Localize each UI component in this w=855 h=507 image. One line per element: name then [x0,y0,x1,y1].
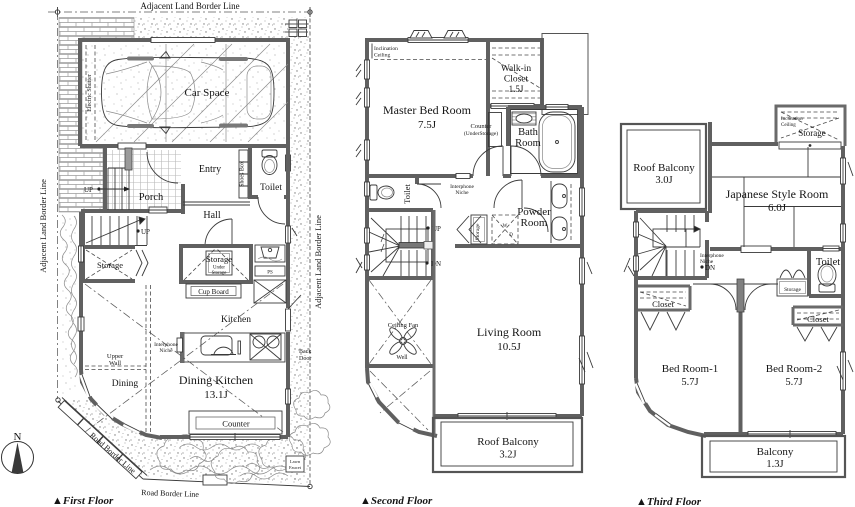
svg-text:Storage: Storage [784,287,801,293]
svg-text:Upper: Upper [107,353,124,360]
svg-text:Dining: Dining [112,379,139,389]
svg-text:Inclination: Inclination [781,117,803,122]
svg-text:Dining Kitchen: Dining Kitchen [179,373,253,387]
svg-text:5.7J: 5.7J [681,377,698,388]
svg-text:Adjacent Land Border Line: Adjacent Land Border Line [38,179,48,273]
svg-text:Adjacent Land Border Line: Adjacent Land Border Line [140,1,239,11]
svg-text:Faucet: Faucet [289,465,302,470]
svg-text:Toilet: Toilet [816,257,840,268]
svg-text:Room: Room [521,217,548,229]
svg-text:Counter: Counter [222,419,250,429]
svg-text:13.1J: 13.1J [204,389,228,401]
svg-text:1.3J: 1.3J [766,459,783,470]
svg-text:Closet: Closet [504,75,529,85]
svg-text:Shoes Box: Shoes Box [240,161,246,187]
svg-text:Hall: Hall [203,210,220,221]
svg-text:DN: DN [705,264,715,272]
svg-text:Niche: Niche [455,190,469,196]
svg-text:Roof Balcony: Roof Balcony [477,436,539,448]
svg-text:Storage: Storage [206,254,232,264]
svg-text:Storage: Storage [212,271,227,276]
svg-text:Lawn: Lawn [290,459,301,464]
svg-text:Cup Board: Cup Board [198,288,229,296]
svg-text:Entry: Entry [199,164,221,175]
svg-text:Counter: Counter [471,123,493,130]
svg-text:▲Second Floor: ▲Second Floor [360,495,433,507]
svg-text:6.0J: 6.0J [768,202,787,214]
svg-text:Niche: Niche [159,348,173,354]
svg-text:Toilet: Toilet [260,183,282,193]
svg-text:▲First Floor: ▲First Floor [52,495,114,507]
svg-text:Car Space: Car Space [185,87,230,99]
svg-text:Closet: Closet [652,299,674,309]
svg-text:Porch: Porch [139,192,164,203]
svg-text:3.2J: 3.2J [499,450,516,461]
svg-text:Door: Door [299,356,311,362]
svg-text:D: D [509,233,513,238]
svg-text:Electric Shutter: Electric Shutter [87,74,93,112]
svg-text:Walk-in: Walk-in [501,64,532,74]
svg-text:Inclination: Inclination [374,46,398,52]
svg-text:5.7J: 5.7J [785,377,802,388]
svg-text:1.5J: 1.5J [509,84,524,94]
svg-text:Master Bed Room: Master Bed Room [383,103,472,117]
svg-text:UP: UP [141,228,150,236]
svg-text:Balcony: Balcony [757,446,794,458]
svg-text:Room: Room [515,138,541,149]
svg-text:3.0J: 3.0J [655,175,672,186]
svg-text:Storage: Storage [97,260,123,270]
svg-text:Under: Under [213,266,225,271]
svg-text:Well: Well [396,355,408,361]
svg-text:Bed Room-1: Bed Room-1 [662,363,719,375]
svg-text:▲Third Floor: ▲Third Floor [636,496,702,507]
svg-text:W: W [503,224,508,229]
svg-text:Ceiling: Ceiling [781,123,796,128]
svg-text:Toilet: Toilet [402,184,412,204]
svg-text:PS: PS [267,271,273,276]
svg-text:Japanese Style Room: Japanese Style Room [726,187,829,201]
svg-text:10.5J: 10.5J [497,341,521,353]
svg-text:Back: Back [299,349,311,355]
svg-text:N: N [14,431,22,443]
svg-text:Roof Balcony: Roof Balcony [633,162,695,174]
svg-text:Bed Room-2: Bed Room-2 [766,363,823,375]
svg-text:Adjacent Land Border Line: Adjacent Land Border Line [313,215,323,309]
svg-text:Storage: Storage [798,128,826,138]
svg-text:Bath: Bath [518,127,539,138]
svg-text:Ceiling: Ceiling [374,53,390,59]
svg-text:Living Room: Living Room [477,325,542,339]
svg-text:7.5J: 7.5J [418,119,437,131]
svg-text:Closet: Closet [807,314,829,324]
svg-text:UP: UP [84,186,93,194]
svg-text:(UnderStorage): (UnderStorage) [464,130,498,137]
svg-text:Wall: Wall [109,360,121,367]
svg-text:Kitchen: Kitchen [221,315,251,325]
